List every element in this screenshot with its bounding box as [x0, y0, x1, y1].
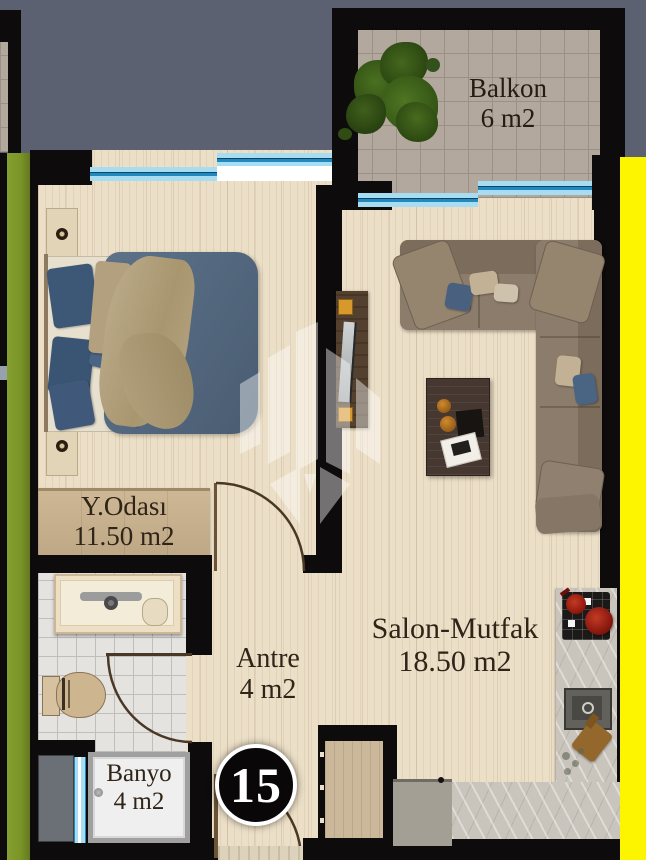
nightstand-lamp-icon [56, 228, 68, 240]
bedroom-window-left [90, 167, 217, 181]
bedroom-window-right-sill [217, 166, 332, 181]
cabinet-hinge-tick [320, 752, 324, 757]
appliance-knob [438, 777, 444, 783]
bed-pillow [48, 379, 95, 431]
wall-bedroom-bottom [38, 555, 210, 573]
room-area: 4 m2 [218, 675, 318, 706]
sofa-pillow-light [493, 283, 518, 303]
entry-cabinet [325, 741, 383, 838]
herb-scatter [564, 768, 571, 775]
wall-bedroom-top [30, 150, 92, 185]
bed [46, 254, 258, 432]
room-area: 11.50 m2 [38, 522, 210, 552]
cooking-pot-icon [566, 594, 586, 614]
unit-number-badge: 15 [215, 744, 297, 826]
room-label-bathroom: Banyo 4 m2 [90, 760, 188, 815]
bathroom-door-arc [104, 652, 196, 746]
room-name: Salon-Mutfak [352, 612, 558, 645]
floor-plan-canvas: Y.Odası 11.50 m2 [0, 0, 646, 860]
room-label-balcony: Balkon 6 m2 [443, 74, 573, 133]
sofa-pillow-blue [572, 373, 598, 406]
balcony-door-window-right [478, 181, 592, 195]
bedroom-window-right [217, 153, 332, 166]
wall-balcony-top [332, 8, 625, 30]
dishwasher-appliance [393, 779, 452, 846]
room-name: Antre [218, 644, 318, 675]
tv-speaker-icon [338, 299, 353, 315]
room-area: 18.50 m2 [352, 645, 558, 678]
room-area: 6 m2 [443, 104, 573, 134]
cabinet-hinge-tick [320, 785, 324, 790]
room-label-living-kitchen: Salon-Mutfak 18.50 m2 [352, 612, 558, 678]
bathroom-window-vertical [74, 757, 86, 843]
sink-drain-icon [104, 596, 118, 610]
exterior-strip-yellow [620, 157, 646, 860]
wall-balcony-right [600, 8, 625, 160]
developer-watermark [238, 322, 383, 537]
utility-shaft [38, 755, 74, 842]
herb-scatter [562, 752, 570, 760]
cabinet-hinge-tick [320, 818, 324, 823]
balcony-door-window-left [358, 193, 478, 207]
wall-bathroom-right-upper [186, 555, 212, 655]
fruit-bowl-icon [440, 416, 456, 432]
room-label-bedroom: Y.Odası 11.50 m2 [38, 492, 210, 551]
toilet-seat-line [62, 678, 65, 710]
room-area: 4 m2 [90, 788, 188, 816]
cooking-pot-icon [585, 607, 613, 635]
wall-left-sliver [0, 153, 7, 860]
room-name: Y.Odası [38, 492, 210, 522]
herb-scatter [578, 748, 584, 754]
room-label-hall: Antre 4 m2 [218, 644, 318, 706]
toilet-seat-line [68, 680, 70, 708]
room-name: Balkon [443, 74, 573, 104]
vanity-basin [142, 598, 168, 626]
neighbor-balcony-sliver [0, 24, 8, 152]
left-sliver-notch [0, 366, 7, 380]
herb-scatter [572, 760, 579, 767]
stove-burner-mark [568, 620, 575, 627]
wall-bottom-right [303, 838, 622, 860]
sofa-end-cushion [535, 493, 602, 534]
unit-number: 15 [230, 760, 282, 810]
room-name: Banyo [90, 760, 188, 788]
kitchen-counter-bottom [452, 782, 622, 839]
fruit-bowl-icon [437, 399, 451, 413]
exterior-strip-green [7, 153, 30, 860]
entry-threshold [218, 846, 303, 860]
wall-neighbor-left [8, 12, 21, 155]
sofa-seam [540, 406, 600, 408]
sofa-seam [540, 336, 600, 338]
nightstand-lamp-icon [56, 440, 68, 452]
plant-icon [338, 36, 442, 146]
